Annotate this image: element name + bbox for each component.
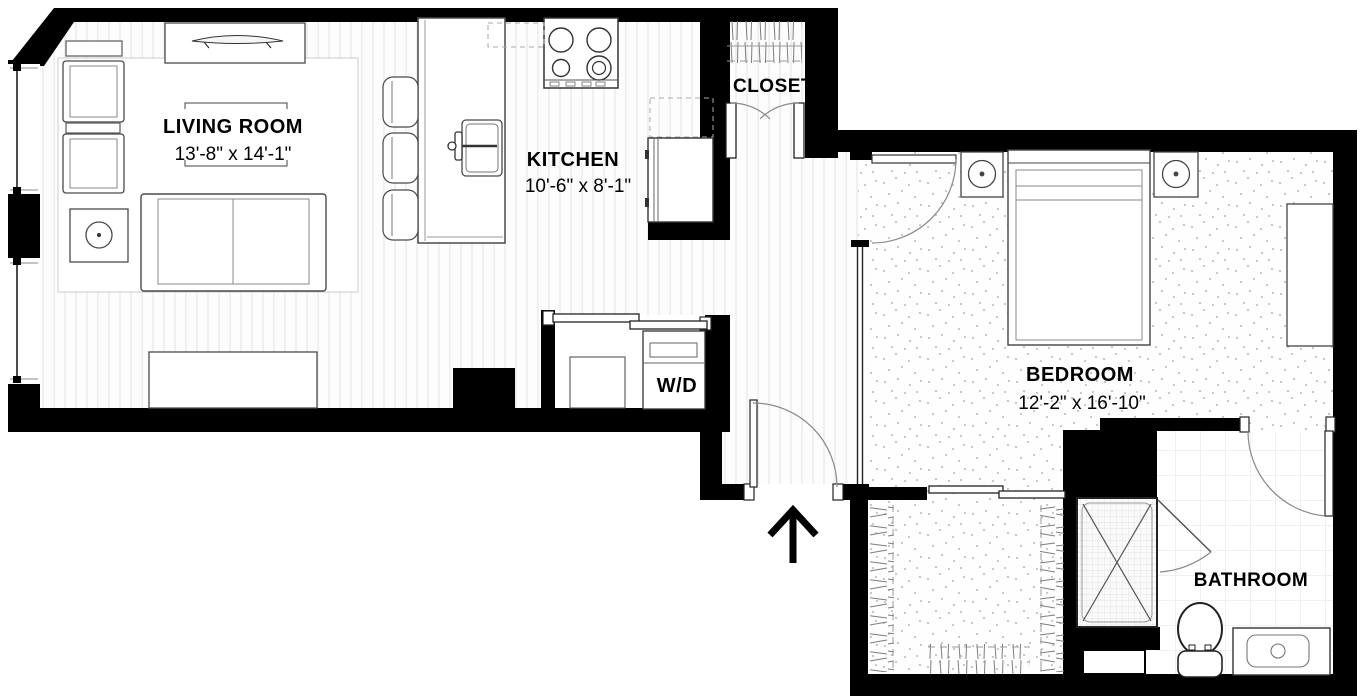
stove-icon (544, 18, 618, 88)
closet-label: CLOSET (733, 76, 813, 97)
dresser (1287, 204, 1333, 346)
hanging-clothes (870, 504, 894, 672)
wall-wic-opening-left (868, 487, 927, 500)
living-room-label: LIVING ROOM (163, 116, 303, 138)
washer-dryer-icon (643, 331, 705, 409)
door-jamb (543, 311, 554, 325)
wall-entry-left (712, 484, 746, 500)
wall-right-outer (1333, 130, 1357, 696)
wall-column (453, 368, 515, 408)
wall-fridge-band (648, 222, 730, 240)
linen-niche (1083, 650, 1145, 674)
ottoman (149, 352, 317, 408)
door-jamb (833, 484, 843, 500)
wall-bedroom-top (838, 130, 1357, 152)
sofa (141, 194, 326, 291)
kitchen-dimensions: 10'-6" x 8'-1" (525, 176, 631, 197)
wall-bottom-living (8, 408, 545, 432)
between-chairs-table (66, 123, 120, 133)
side-console (66, 41, 122, 56)
kitchen-label: KITCHEN (527, 149, 619, 171)
window (8, 258, 40, 384)
armchair (63, 61, 124, 122)
sliding-door[interactable] (851, 240, 869, 491)
wall-bottom-right (850, 674, 1357, 696)
wall-below-shower (1077, 627, 1160, 650)
bypass-door[interactable] (630, 321, 707, 329)
bypass-door[interactable] (999, 491, 1065, 498)
bathroom-label: BATHROOM (1194, 570, 1308, 591)
window (8, 64, 40, 194)
side-table-lamp (70, 209, 128, 262)
nightstand (1154, 152, 1198, 197)
nightstand (961, 152, 1003, 197)
bedroom-dimensions: 12'-2" x 16'-10" (1018, 393, 1145, 414)
hanging-clothes (728, 21, 802, 63)
armchair (63, 134, 124, 193)
bar-stool (383, 190, 418, 240)
refrigerator-icon (645, 138, 713, 222)
bedroom-door[interactable] (872, 155, 956, 163)
vanity-sink-icon (1233, 628, 1330, 675)
lamp-icon (1174, 172, 1178, 176)
wall-left-2 (8, 192, 40, 262)
bathroom-door[interactable] (1325, 431, 1333, 516)
lamp-icon (97, 233, 101, 237)
wall-bed-bath-block (1100, 418, 1157, 498)
door-jamb (1326, 417, 1335, 432)
bypass-door[interactable] (929, 486, 1003, 493)
entry-door[interactable] (750, 400, 757, 487)
bar-stool (383, 133, 418, 183)
laundry-basket (570, 357, 625, 408)
bar-stool (383, 77, 418, 127)
laundry-label: W/D (657, 375, 697, 397)
hanging-clothes (927, 644, 1030, 674)
floor-plan-svg: LIVING ROOM 13'-8" x 14'-1" KITCHEN 10'-… (0, 0, 1360, 696)
toilet-icon (1178, 603, 1222, 677)
lamp-icon (980, 172, 984, 176)
wall-wic-left (850, 488, 868, 676)
floor-plan-page: LIVING ROOM 13'-8" x 14'-1" KITCHEN 10'-… (0, 0, 1360, 696)
bed-icon (1008, 150, 1150, 345)
hanging-clothes (1040, 504, 1064, 672)
wall-bedroom-door-jamb (850, 148, 872, 160)
door-jamb (1240, 417, 1249, 432)
bypass-door[interactable] (553, 314, 639, 322)
living-room-dimensions: 13'-8" x 14'-1" (175, 144, 292, 165)
bedroom-label: BEDROOM (1026, 364, 1134, 386)
